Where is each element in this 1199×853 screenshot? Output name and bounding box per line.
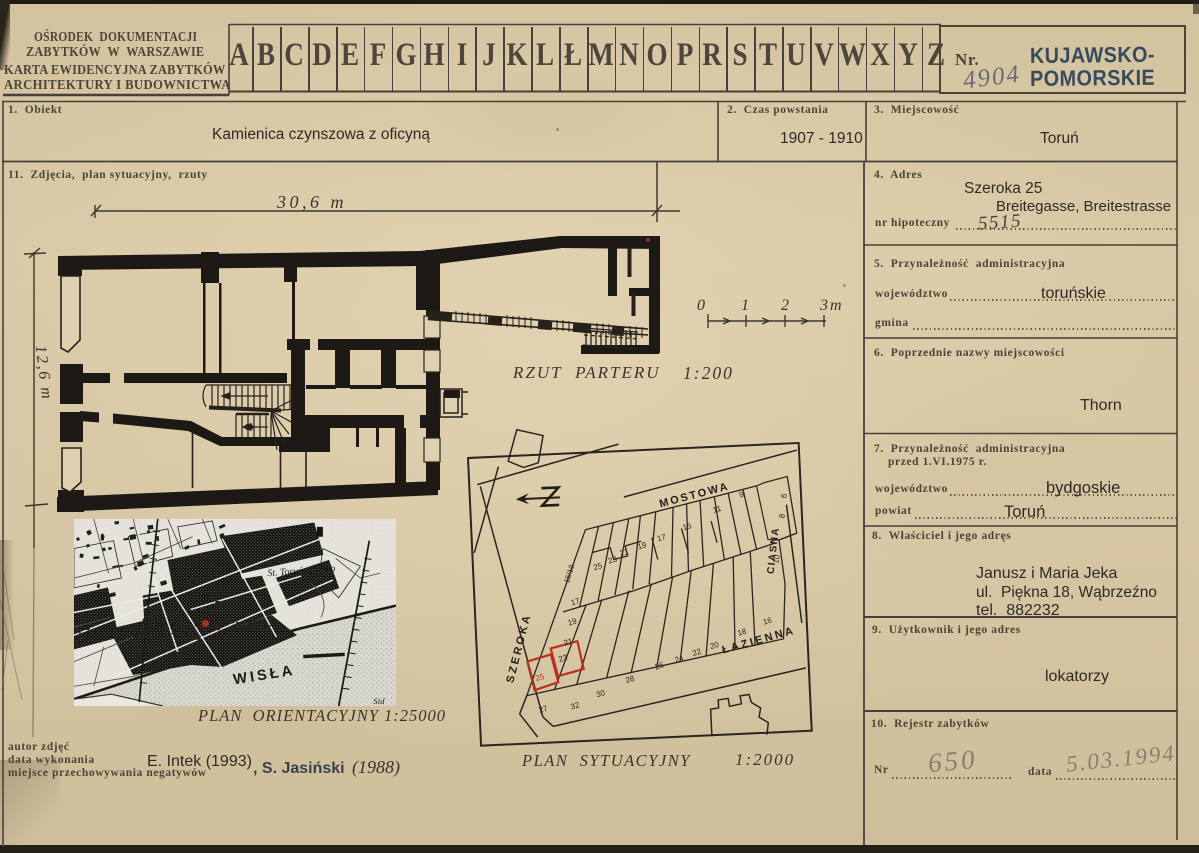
svg-text:28: 28 <box>624 674 636 685</box>
svg-text:19: 19 <box>567 616 579 627</box>
svg-text:11: 11 <box>712 504 723 515</box>
svg-text:17: 17 <box>656 532 668 543</box>
svg-text:18: 18 <box>736 627 748 638</box>
svg-text:8: 8 <box>777 512 787 519</box>
svg-text:15/19: 15/19 <box>562 564 576 585</box>
svg-text:26: 26 <box>654 660 666 671</box>
svg-text:15: 15 <box>682 521 694 532</box>
svg-text:32: 32 <box>570 700 582 711</box>
svg-text:24: 24 <box>674 653 686 664</box>
svg-text:ŁAZIENNA: ŁAZIENNA <box>721 625 797 657</box>
svg-text:CIASNA: CIASNA <box>766 526 782 574</box>
svg-text:6: 6 <box>779 492 789 499</box>
svg-text:23: 23 <box>607 554 619 565</box>
svg-text:21: 21 <box>563 636 575 647</box>
svg-text:27: 27 <box>538 704 550 715</box>
svg-text:21: 21 <box>619 547 631 558</box>
svg-text:20: 20 <box>709 640 721 651</box>
svg-text:25: 25 <box>534 672 546 683</box>
svg-text:25: 25 <box>592 561 604 572</box>
svg-text:22: 22 <box>691 647 703 658</box>
svg-text:19: 19 <box>636 540 648 551</box>
svg-text:16: 16 <box>762 615 774 626</box>
svg-text:30: 30 <box>595 688 607 699</box>
